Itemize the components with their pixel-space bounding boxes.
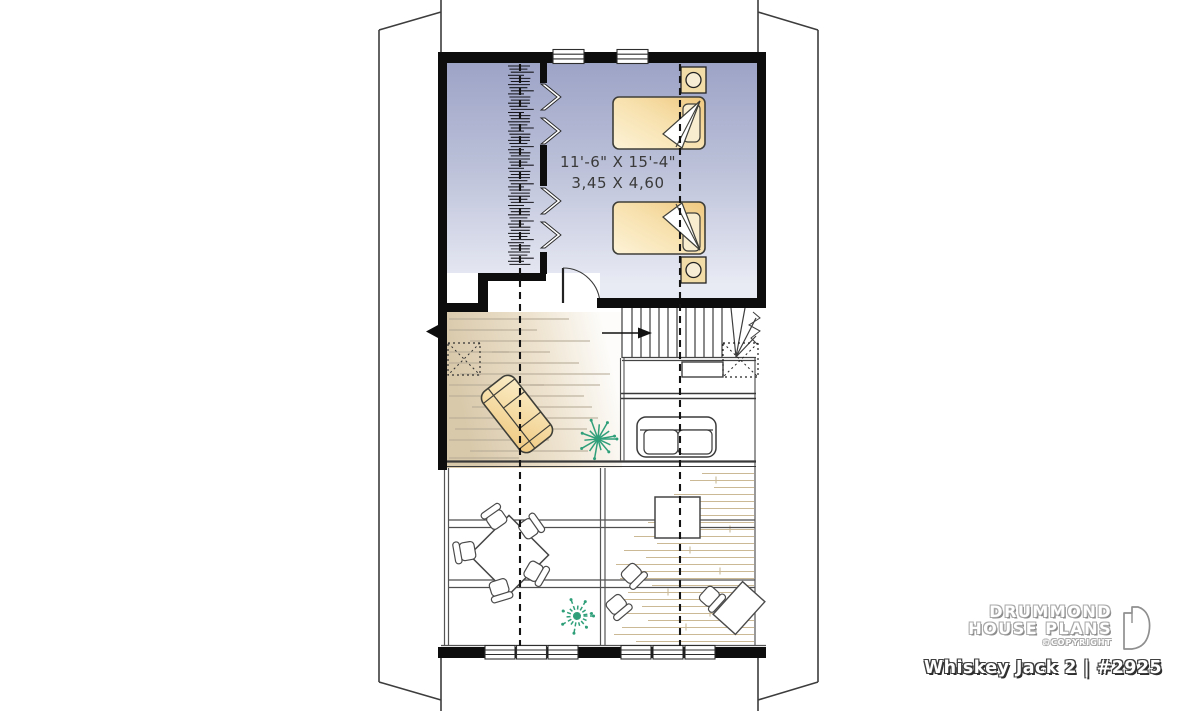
plan-title: Whiskey Jack 2 | #2925	[880, 658, 1162, 678]
window	[485, 646, 515, 660]
nightstand-2	[681, 257, 706, 283]
window	[653, 646, 683, 660]
window	[517, 646, 547, 660]
brand-line-1: DRUMMOND	[900, 603, 1112, 620]
drummond-logo-icon	[1116, 603, 1152, 651]
bed-2	[613, 202, 705, 254]
window	[685, 646, 715, 660]
window	[617, 50, 648, 64]
stair-bottom-edge	[622, 358, 756, 361]
side-table	[655, 497, 700, 538]
window	[553, 50, 584, 64]
stair-winders	[731, 308, 756, 357]
nightstand-1	[681, 67, 706, 93]
brand-line-2: HOUSE PLANS	[900, 620, 1112, 637]
brand-name: DRUMMOND HOUSE PLANS ©COPYRIGHT	[900, 603, 1112, 648]
window	[621, 646, 651, 660]
room-dimensions-metric: 3,45 X 4,60	[528, 173, 708, 194]
copyright-label: ©COPYRIGHT	[900, 637, 1112, 648]
floor-plan-page: 11'-6" X 15'-4" 3,45 X 4,60 DRUMMOND HOU…	[0, 0, 1200, 711]
bed-1	[613, 97, 705, 149]
room-dimensions: 11'-6" X 15'-4" 3,45 X 4,60	[528, 152, 708, 194]
stair-half-wall	[682, 362, 723, 377]
section-cut-marker	[426, 325, 438, 338]
window	[548, 646, 578, 660]
brand-block: DRUMMOND HOUSE PLANS ©COPYRIGHT	[900, 603, 1152, 651]
loveseat	[637, 417, 716, 457]
bedroom-door	[563, 268, 600, 305]
stair-side-wall	[621, 358, 625, 461]
mezzanine-railing	[621, 394, 756, 399]
room-dimensions-imperial: 11'-6" X 15'-4"	[528, 152, 708, 173]
